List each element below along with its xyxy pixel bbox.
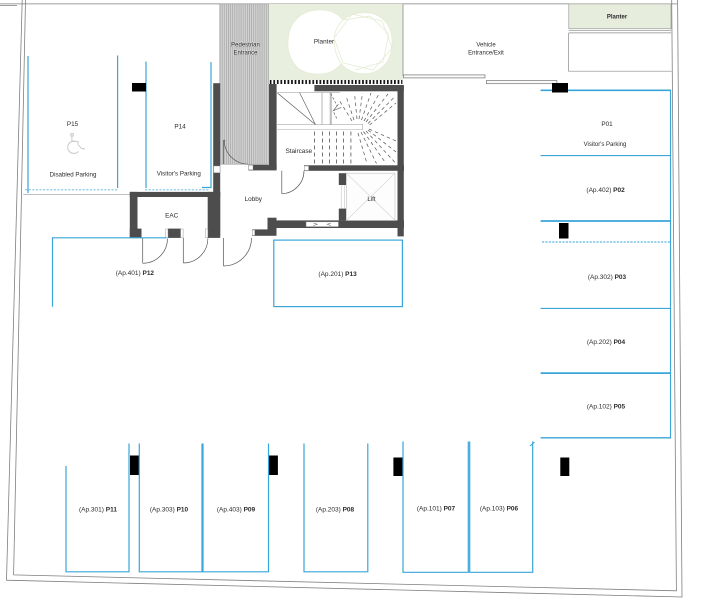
svg-text:Visitor's Parking: Visitor's Parking xyxy=(584,142,627,148)
svg-text:(Ap.103) P06: (Ap.103) P06 xyxy=(480,506,519,513)
svg-text:Entrance/Exit: Entrance/Exit xyxy=(468,51,504,57)
svg-text:(Ap.201) P13: (Ap.201) P13 xyxy=(318,271,357,278)
svg-text:(Ap.101) P07: (Ap.101) P07 xyxy=(417,506,456,513)
svg-text:Disabled Parking: Disabled Parking xyxy=(50,171,97,178)
svg-text:Staircase: Staircase xyxy=(285,148,312,155)
svg-text:Visitor's Parking: Visitor's Parking xyxy=(157,171,202,178)
svg-text:(Ap.302) P03: (Ap.302) P03 xyxy=(588,274,627,281)
svg-text:Planter: Planter xyxy=(314,39,335,46)
svg-text:(Ap.401) P12: (Ap.401) P12 xyxy=(116,270,155,277)
svg-text:(Ap.402) P02: (Ap.402) P02 xyxy=(586,187,625,194)
svg-text:(Ap.102) P05: (Ap.102) P05 xyxy=(587,404,626,411)
svg-text:P14: P14 xyxy=(174,123,186,130)
svg-text:Planter: Planter xyxy=(607,14,628,20)
svg-text:Entrance: Entrance xyxy=(233,51,258,57)
svg-text:P15: P15 xyxy=(67,121,79,128)
svg-text:EAC: EAC xyxy=(165,213,179,220)
svg-text:Lift: Lift xyxy=(367,196,376,203)
svg-text:(Ap.301) P11: (Ap.301) P11 xyxy=(79,507,117,514)
svg-text:(Ap.203) P08: (Ap.203) P08 xyxy=(316,507,355,514)
svg-text:Vehicle: Vehicle xyxy=(476,43,496,49)
svg-text:(Ap.403) P09: (Ap.403) P09 xyxy=(217,507,256,514)
svg-text:Lobby: Lobby xyxy=(245,196,263,203)
svg-text:(Ap.202) P04: (Ap.202) P04 xyxy=(587,339,626,346)
svg-text:Pedestrian: Pedestrian xyxy=(231,43,260,49)
svg-text:P01: P01 xyxy=(601,121,613,128)
svg-text:(Ap.303) P10: (Ap.303) P10 xyxy=(150,507,189,514)
